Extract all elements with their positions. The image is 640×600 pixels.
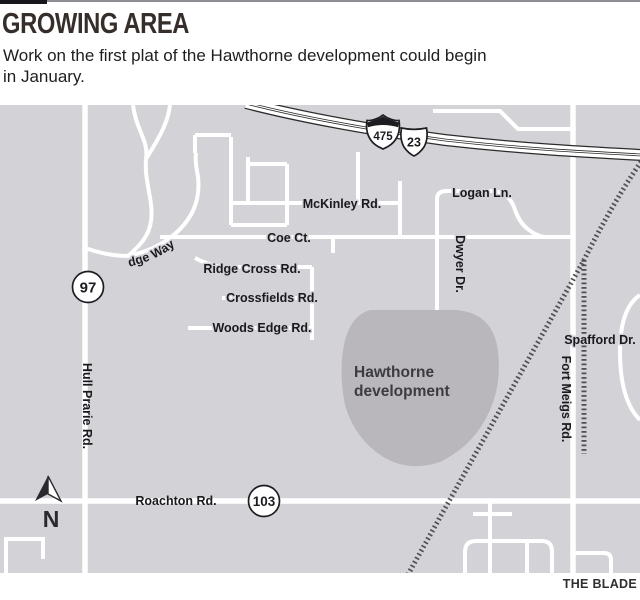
subtitle-line1: Work on the first plat of the Hawthorne … <box>3 46 487 65</box>
road-label-roachton: Roachton Rd. <box>135 494 216 508</box>
shield-number-97: 97 <box>80 280 97 297</box>
road-label-crossfields: Crossfields Rd. <box>226 291 318 305</box>
road-label-hull-prarie: Hull Prarie Rd. <box>80 363 94 449</box>
locator-map: McKinley Rd. Logan Ln. Coe Ct. Ridge Cro… <box>0 105 640 573</box>
road-label-spafford: Spafford Dr. <box>564 333 636 347</box>
subtitle-line2: in January. <box>3 67 85 86</box>
shield-number-23: 23 <box>407 136 421 150</box>
road-label-woods-edge: Woods Edge Rd. <box>212 321 311 335</box>
road-label-ridge-cross: Ridge Cross Rd. <box>203 262 300 276</box>
road-label-mckinley: McKinley Rd. <box>303 197 382 211</box>
page-title: GROWING AREA <box>2 8 189 41</box>
top-rule <box>0 0 640 2</box>
source-credit: THE BLADE <box>563 577 637 591</box>
north-label: N <box>43 506 60 532</box>
road-label-dwyer: Dwyer Dr. <box>453 235 467 293</box>
shield-number-103: 103 <box>253 494 276 509</box>
road-label-logan: Logan Ln. <box>452 186 512 200</box>
figure: GROWING AREA Work on the first plat of t… <box>0 0 640 600</box>
top-rule-tab <box>0 0 47 4</box>
road-label-coe: Coe Ct. <box>267 231 311 245</box>
area-label-line2: development <box>354 383 450 400</box>
state-route-shield-97: 97 <box>73 272 104 303</box>
subtitle: Work on the first plat of the Hawthorne … <box>3 46 623 87</box>
state-route-shield-103: 103 <box>249 486 280 517</box>
shield-number-475: 475 <box>373 131 393 143</box>
area-label-line1: Hawthorne <box>354 364 434 381</box>
road-label-fort-meigs: Fort Meigs Rd. <box>559 356 573 443</box>
